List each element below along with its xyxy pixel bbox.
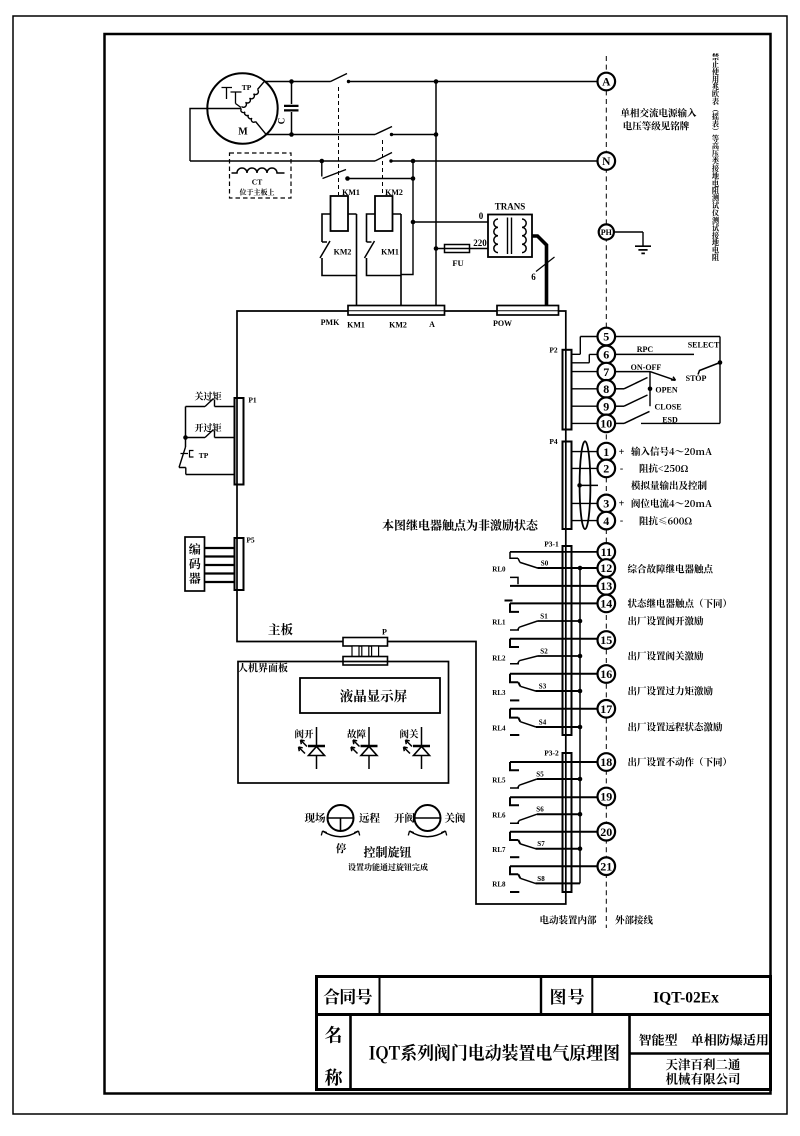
- svg-text:TP: TP: [242, 83, 252, 92]
- svg-text:SELECT: SELECT: [688, 341, 720, 350]
- svg-text:设置功能通过旋钮完成: 设置功能通过旋钮完成: [348, 862, 428, 873]
- svg-text:RL7: RL7: [492, 846, 506, 854]
- svg-text:控制旋钮: 控制旋钮: [363, 844, 411, 861]
- svg-text:关阀: 关阀: [445, 811, 466, 826]
- svg-text:CLOSE: CLOSE: [654, 403, 681, 412]
- svg-text:3: 3: [603, 497, 609, 511]
- svg-text:S1: S1: [540, 613, 548, 621]
- svg-text:PH: PH: [601, 228, 613, 237]
- svg-text:+: +: [619, 499, 625, 510]
- svg-text:S2: S2: [540, 648, 548, 656]
- svg-text:P4: P4: [549, 437, 558, 446]
- svg-text:RL0: RL0: [492, 566, 506, 574]
- svg-text:现场: 现场: [305, 811, 326, 826]
- svg-text:RL4: RL4: [492, 725, 506, 733]
- svg-text:IQT-02Ex: IQT-02Ex: [653, 990, 719, 1007]
- svg-text:电压等级见铭牌: 电压等级见铭牌: [623, 119, 690, 133]
- svg-text:19: 19: [600, 790, 612, 804]
- svg-text:STOP: STOP: [686, 374, 707, 383]
- svg-text:关过矩: 关过矩: [194, 390, 221, 403]
- svg-text:综合故障继电器触点: 综合故障继电器触点: [628, 562, 715, 576]
- svg-text:M: M: [238, 127, 248, 138]
- svg-text:C: C: [277, 118, 287, 125]
- svg-text:P3-2: P3-2: [544, 749, 559, 758]
- svg-text:S7: S7: [537, 840, 545, 848]
- svg-text:RL3: RL3: [492, 689, 506, 697]
- svg-text:阀关: 阀关: [399, 727, 419, 741]
- svg-text:单相交流电源输入: 单相交流电源输入: [620, 106, 697, 120]
- svg-text:220: 220: [473, 238, 487, 248]
- svg-text:S6: S6: [536, 806, 544, 814]
- svg-text:名: 名: [325, 1022, 343, 1048]
- svg-text:10: 10: [600, 417, 612, 431]
- svg-text:2: 2: [603, 462, 609, 476]
- svg-text:机械有限公司: 机械有限公司: [665, 1070, 740, 1088]
- svg-text:-: -: [620, 516, 623, 527]
- svg-text:4: 4: [603, 514, 609, 528]
- svg-text:禁止使用兆欧表︵摇表︶等高压类接地电阻测试仪测试接地电阻: 禁止使用兆欧表︵摇表︶等高压类接地电阻测试仪测试接地电阻: [712, 53, 720, 264]
- svg-text:位于主板上: 位于主板上: [240, 188, 275, 198]
- svg-text:18: 18: [600, 755, 612, 769]
- svg-text:图号: 图号: [550, 983, 585, 1008]
- svg-text:P5: P5: [246, 536, 255, 545]
- svg-text:0: 0: [479, 211, 484, 221]
- svg-text:14: 14: [600, 597, 612, 611]
- svg-text:1: 1: [603, 445, 609, 459]
- svg-text:5: 5: [603, 330, 609, 344]
- svg-text:阻抗≤600Ω: 阻抗≤600Ω: [639, 514, 692, 528]
- svg-text:出厂设置不动作（下同）: 出厂设置不动作（下同）: [628, 755, 733, 769]
- svg-text:开阀: 开阀: [394, 811, 415, 826]
- svg-text:器: 器: [189, 570, 201, 587]
- svg-text:N: N: [602, 156, 611, 168]
- svg-text:P: P: [382, 628, 387, 637]
- svg-text:6: 6: [531, 272, 536, 282]
- svg-text:阻抗<250Ω: 阻抗<250Ω: [639, 461, 689, 475]
- svg-text:电动装置内部: 电动装置内部: [539, 913, 597, 927]
- svg-text:TP: TP: [199, 451, 209, 460]
- svg-text:远程: 远程: [359, 811, 380, 826]
- svg-text:21: 21: [600, 859, 612, 873]
- svg-text:POW: POW: [493, 319, 512, 328]
- svg-text:液晶显示屏: 液晶显示屏: [340, 685, 408, 705]
- svg-text:7: 7: [603, 365, 609, 379]
- svg-text:本图继电器触点为非激励状态: 本图继电器触点为非激励状态: [382, 517, 539, 534]
- svg-text:CT: CT: [252, 178, 262, 187]
- svg-text:状态继电器触点（下同）: 状态继电器触点（下同）: [628, 596, 733, 610]
- svg-text:RL1: RL1: [492, 619, 506, 627]
- svg-text:开过矩: 开过矩: [194, 421, 221, 434]
- svg-text:IQT系列阀门电动装置电气原理图: IQT系列阀门电动装置电气原理图: [369, 1040, 621, 1066]
- svg-text:9: 9: [603, 399, 609, 413]
- svg-text:KM1: KM1: [381, 248, 399, 257]
- svg-text:20: 20: [600, 825, 612, 839]
- svg-text:13: 13: [600, 579, 612, 593]
- svg-text:外部接线: 外部接线: [615, 913, 654, 927]
- svg-text:P1: P1: [248, 396, 257, 405]
- svg-text:RL5: RL5: [492, 777, 506, 785]
- svg-text:TRANS: TRANS: [495, 202, 526, 212]
- svg-text:S5: S5: [536, 771, 544, 779]
- svg-text:KM2: KM2: [389, 321, 407, 330]
- svg-text:输入信号4～20mA: 输入信号4～20mA: [631, 444, 712, 458]
- svg-text:RPC: RPC: [637, 345, 654, 354]
- svg-text:称: 称: [325, 1064, 345, 1090]
- svg-text:FU: FU: [452, 258, 463, 268]
- svg-text:出厂设置阀关激励: 出厂设置阀关激励: [628, 649, 705, 663]
- svg-text:S4: S4: [539, 719, 547, 727]
- svg-text:RL6: RL6: [492, 812, 506, 820]
- svg-text:+: +: [619, 447, 625, 458]
- svg-text:智能型 单相防爆适用: 智能型 单相防爆适用: [639, 1031, 770, 1049]
- svg-text:16: 16: [600, 667, 612, 681]
- svg-text:-: -: [620, 464, 623, 475]
- svg-text:阀开: 阀开: [294, 727, 314, 741]
- svg-text:A: A: [602, 77, 611, 89]
- svg-text:RL8: RL8: [492, 881, 506, 889]
- svg-text:出厂设置过力矩激励: 出厂设置过力矩激励: [628, 684, 714, 698]
- svg-text:ON-OFF: ON-OFF: [631, 363, 662, 372]
- svg-text:RL2: RL2: [492, 655, 506, 663]
- svg-text:主板: 主板: [268, 620, 294, 638]
- svg-text:OPEN: OPEN: [655, 386, 677, 395]
- svg-text:KM2: KM2: [334, 248, 352, 257]
- svg-text:8: 8: [603, 382, 609, 396]
- svg-text:6: 6: [603, 348, 609, 362]
- svg-text:合同号: 合同号: [323, 983, 373, 1008]
- svg-text:17: 17: [600, 702, 612, 716]
- svg-text:11: 11: [601, 545, 612, 559]
- svg-text:12: 12: [600, 561, 612, 575]
- svg-text:S8: S8: [537, 875, 545, 883]
- svg-text:故障: 故障: [347, 727, 367, 741]
- svg-text:模拟量输出及控制: 模拟量输出及控制: [631, 478, 708, 492]
- svg-text:PMK: PMK: [321, 318, 340, 327]
- svg-text:出厂设置远程状态激励: 出厂设置远程状态激励: [628, 720, 724, 734]
- svg-text:停: 停: [336, 841, 347, 856]
- svg-text:15: 15: [600, 633, 612, 647]
- svg-text:KM1: KM1: [347, 321, 365, 330]
- svg-text:出厂设置阀开激励: 出厂设置阀开激励: [628, 614, 705, 628]
- svg-text:阀位电流4～20mA: 阀位电流4～20mA: [631, 496, 712, 510]
- svg-text:A: A: [429, 320, 435, 329]
- svg-text:P2: P2: [549, 346, 558, 355]
- svg-text:ESD: ESD: [662, 416, 678, 425]
- svg-text:S3: S3: [539, 683, 547, 691]
- svg-text:P3-1: P3-1: [544, 540, 559, 549]
- svg-text:人机界面板: 人机界面板: [238, 660, 288, 675]
- svg-text:S0: S0: [541, 560, 549, 568]
